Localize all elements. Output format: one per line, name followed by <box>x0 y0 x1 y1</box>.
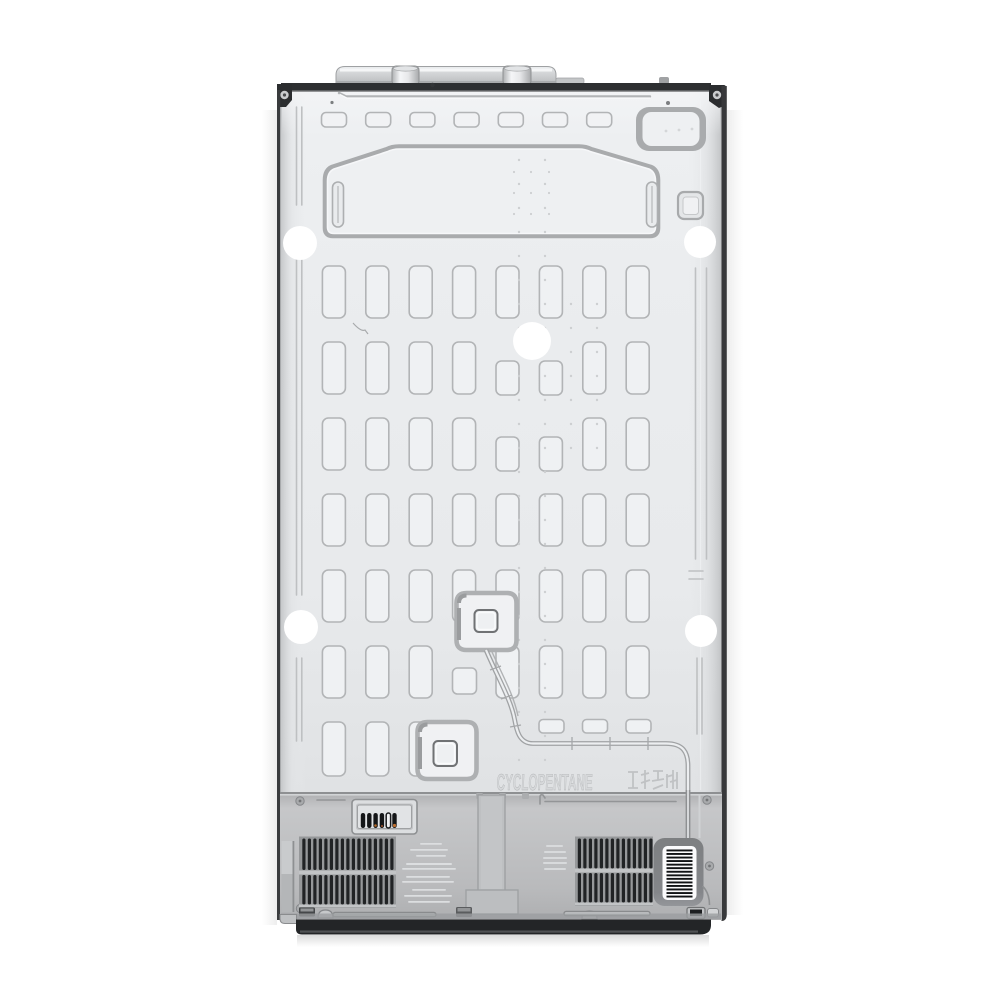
svg-text:CYCLOPENTANE: CYCLOPENTANE <box>496 769 593 795</box>
